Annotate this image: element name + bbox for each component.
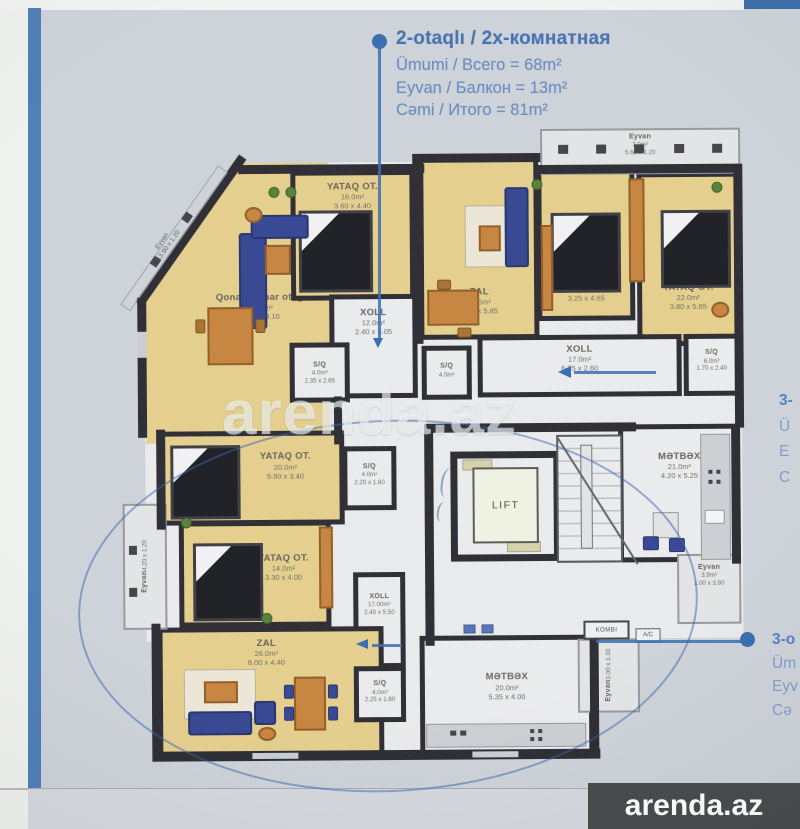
wardrobe [541, 225, 554, 311]
unit2-sum: Cəmi / Итого = 81m² [396, 99, 676, 122]
plant [711, 182, 722, 193]
stove-burner [708, 470, 712, 474]
unit2-callout: 2-otaqlı / 2х-комнатная Ümumi / Всего = … [396, 28, 676, 122]
stove-burner [716, 470, 720, 474]
bed [551, 212, 622, 292]
arrow-left-icon [558, 366, 571, 378]
tv-stand [479, 225, 501, 251]
arenda-logo: arenda.az [588, 783, 800, 829]
unit3-line-cut: Cə [772, 699, 800, 723]
room-dims: 1.70 x 2.40 [689, 365, 735, 373]
wall [137, 298, 147, 438]
dining-table [207, 307, 253, 365]
railing-hatch [674, 144, 684, 153]
callout-dot-2room [372, 34, 387, 49]
unit2-balcony: Eyvan / Балкон = 13m² [396, 77, 676, 100]
bed [299, 210, 374, 293]
unit3-callout-right: 3- Ü E C [779, 388, 800, 490]
entry-arrow-tail [574, 371, 656, 374]
unit3-line-cut: Üm [772, 652, 800, 676]
railing-hatch [596, 145, 606, 154]
arenda-logo-text: arenda.az [625, 789, 763, 823]
room-name: S/Q [689, 349, 735, 358]
room-label: XOLL 17.0m² 6.75 x 2.60 [483, 343, 677, 374]
tv-stand [265, 245, 291, 275]
unit3-title-cut: 3-o [772, 628, 800, 652]
railing-hatch [558, 145, 568, 154]
chair [255, 319, 265, 333]
wall [238, 164, 424, 174]
chair [457, 327, 471, 337]
stove-burner [716, 480, 720, 484]
callout-dot-3room [740, 632, 755, 647]
sink [705, 510, 725, 524]
armchair [711, 302, 729, 318]
wall [731, 424, 741, 564]
floor-plan-photo: Qonaq-Nahar otağı 31.0m² 5.50 x 9.10 YAT… [0, 0, 800, 829]
wardrobe [628, 178, 645, 282]
kitchen-counter [700, 434, 731, 560]
plant [268, 187, 279, 198]
unit2-title: 2-otaqlı / 2х-комнатная [396, 28, 676, 50]
unit3-line-cut: Ü [779, 414, 800, 440]
armchair [245, 207, 263, 223]
room-name: S/Q [295, 361, 345, 370]
stove-burner [708, 480, 712, 484]
wall [412, 158, 423, 344]
room-label: S/Q 6.0m² 1.70 x 2.40 [689, 349, 735, 373]
unit3-title-cut: 3- [779, 388, 800, 414]
window [137, 332, 146, 358]
room-label: XOLL 12.0m² 2.40 x 5.05 [334, 307, 412, 337]
wall [412, 153, 540, 163]
callout-line-2room [378, 48, 381, 338]
plant [531, 179, 542, 190]
bed [661, 210, 732, 288]
room-name: S/Q [427, 363, 467, 372]
unit2-total: Ümumi / Всего = 68m² [396, 54, 676, 77]
unit3-line-cut: C [779, 465, 800, 491]
unit3-line-cut: E [779, 439, 800, 465]
chair [437, 280, 451, 290]
plant [285, 187, 296, 198]
arrow-down-icon [373, 338, 383, 348]
railing-hatch [634, 144, 644, 153]
room-label: S/Q 4.0m² [427, 363, 467, 379]
room-sq-right: S/Q 6.0m² 1.70 x 2.40 [683, 334, 739, 396]
center-watermark: arenda.az [222, 378, 517, 449]
chair [195, 319, 205, 333]
sofa [504, 187, 529, 267]
room-dims: 3.25 x 4.65 [542, 293, 630, 303]
wall [733, 164, 744, 428]
room-name: YATAQ OT. [295, 181, 409, 193]
railing-hatch [712, 144, 722, 153]
room-dims: 2.40 x 5.05 [334, 327, 412, 337]
room-label: YATAQ OT. 16.0m² 3.60 x 4.40 [295, 181, 409, 211]
unit3-line-cut: Eyv [772, 675, 800, 699]
room-name: XOLL [334, 307, 412, 319]
wall [536, 164, 742, 174]
unit3-callout-bottom: 3-o Üm Eyv Cə [772, 628, 800, 722]
dining-table [427, 289, 479, 325]
